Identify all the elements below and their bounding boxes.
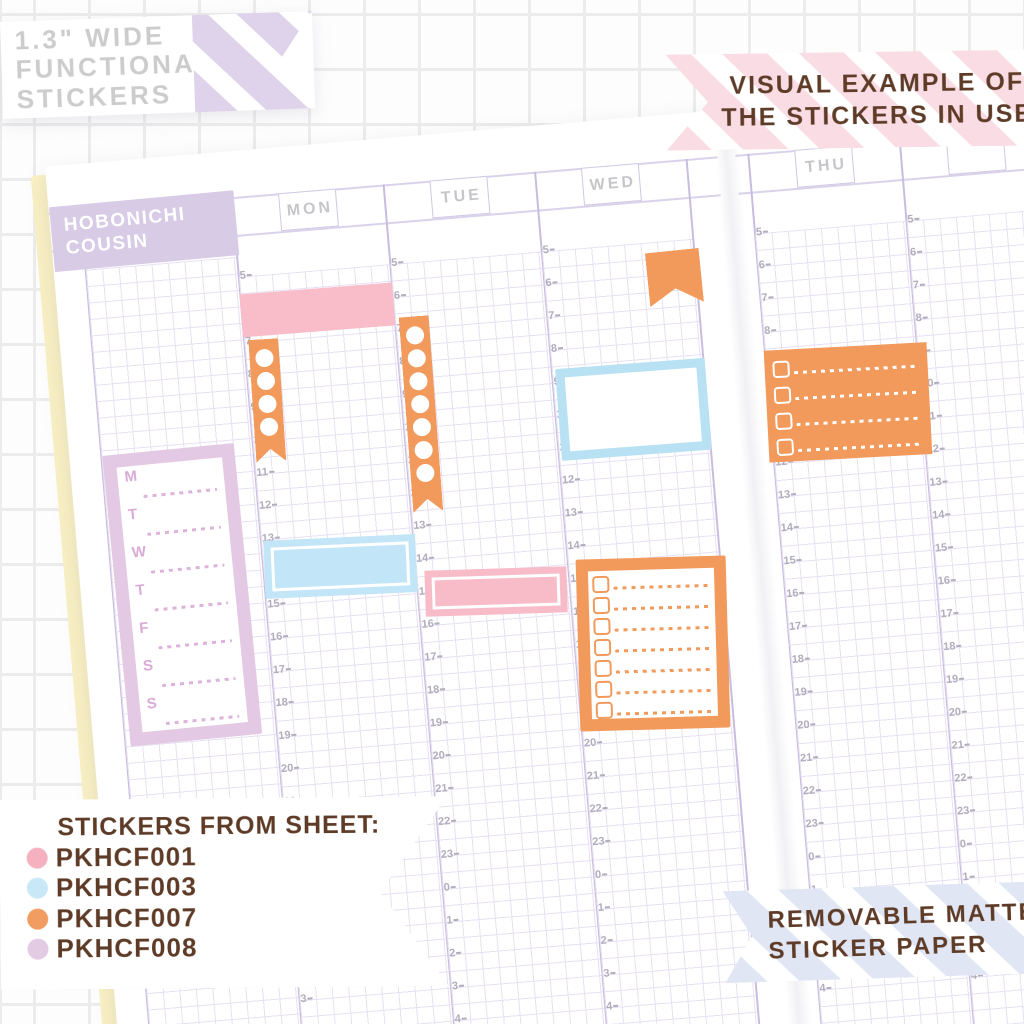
time-label: 2 (600, 934, 613, 947)
time-label: 0 (443, 881, 456, 894)
time-label: 23 (592, 835, 611, 848)
tracker-day-letter: F (139, 619, 150, 637)
time-tick (451, 820, 456, 822)
time-tick (766, 264, 771, 266)
time-label: 7 (912, 279, 925, 292)
time-tick (555, 314, 560, 316)
time-tick (269, 471, 274, 473)
tracker-day-letter: S (146, 695, 158, 713)
time-label: 22 (802, 784, 821, 797)
time-label: 20 (281, 762, 300, 775)
time-tick (914, 218, 919, 220)
time-tick (426, 524, 431, 526)
time-label: 17 (424, 650, 443, 663)
white-inner-outline (271, 541, 411, 591)
time-tick (429, 557, 434, 559)
time-tick (275, 537, 280, 539)
time-label: 5 (755, 225, 768, 238)
time-label: 23 (440, 848, 459, 861)
time-tick (281, 602, 286, 604)
tracker-dotted-line (143, 488, 217, 498)
sheet-code: PKHCF003 (56, 871, 197, 903)
time-label: 3 (603, 967, 616, 980)
product-image: MON5678910111213141516171819202122230123… (0, 0, 1024, 1024)
time-tick (945, 513, 950, 515)
time-tick (605, 906, 610, 908)
time-label: 6 (545, 276, 558, 289)
checklist-circle (414, 440, 433, 459)
legend-rows: PKHCF001PKHCF003PKHCF007PKHCF008 (0, 839, 449, 965)
time-tick (606, 840, 611, 842)
time-tick (440, 688, 445, 690)
time-tick (578, 511, 583, 513)
time-tick (956, 645, 961, 647)
time-label: 14 (780, 521, 799, 534)
orange-solid-checklist-sticker (764, 342, 933, 462)
time-tick (446, 754, 451, 756)
time-tick (575, 478, 580, 480)
day-label: TUE (440, 186, 482, 207)
time-tick (292, 734, 297, 736)
time-label: 16 (786, 587, 805, 600)
time-label: 18 (427, 683, 446, 696)
time-tick (438, 655, 443, 657)
time-tick (771, 329, 776, 331)
time-label: 16 (270, 630, 289, 643)
checkbox-outline (593, 597, 610, 614)
top-left-badge: 1.3" WIDE FUNCTIONAL STICKERS (0, 11, 315, 119)
time-tick (811, 723, 816, 725)
dotted-line (798, 442, 924, 452)
time-tick (608, 939, 613, 941)
dotted-line (795, 390, 921, 400)
time-label: 14 (932, 508, 951, 521)
time-tick (552, 282, 557, 284)
time-tick (435, 623, 440, 625)
day-label: MON (286, 199, 334, 221)
time-label: 0 (595, 868, 608, 881)
time-tick (283, 635, 288, 637)
time-tick (797, 559, 802, 561)
lavender-washi-flag (192, 11, 315, 112)
time-tick (970, 809, 975, 811)
tracker-dotted-line (154, 601, 228, 611)
time-label: 0 (959, 838, 972, 851)
time-tick (610, 972, 615, 974)
time-label: 15 (267, 597, 286, 610)
time-tick (763, 231, 768, 233)
badge-text: REMOVABLE MATTE STICKER PAPER (723, 896, 1024, 968)
time-tick (398, 261, 403, 263)
time-tick (967, 843, 972, 845)
legend-title: STICKERS FROM SHEET: (0, 810, 448, 843)
dotted-line (616, 689, 711, 695)
time-tick (920, 284, 925, 286)
legend-item: PKHCF001 (0, 839, 448, 873)
dotted-line (613, 584, 708, 590)
time-tick (453, 919, 458, 921)
tracker-day-letter: T (135, 581, 146, 599)
time-tick (816, 789, 821, 791)
day-header-box: TUE (429, 176, 490, 219)
time-tick (769, 296, 774, 298)
time-label: 14 (416, 552, 435, 565)
checklist-circle (409, 372, 428, 391)
time-label: 20 (432, 749, 451, 762)
day-label: WED (589, 173, 637, 195)
time-tick (581, 544, 586, 546)
badge-line: STICKERS (16, 78, 216, 114)
time-label: 2 (449, 947, 462, 960)
time-tick (294, 767, 299, 769)
dotted-line (615, 626, 710, 632)
time-tick (308, 998, 313, 1000)
checkbox-outline (595, 681, 612, 698)
time-tick (286, 668, 291, 670)
checklist-row (596, 697, 713, 721)
time-label: 21 (435, 782, 454, 795)
legend-item: PKHCF007 (0, 900, 448, 934)
time-label: 5 (391, 256, 404, 269)
time-tick (813, 756, 818, 758)
time-tick (401, 294, 406, 296)
time-label: 13 (413, 519, 432, 532)
time-label: 16 (937, 574, 956, 587)
tracker-day-letter: S (142, 657, 154, 675)
time-label: 4 (819, 982, 832, 995)
checkbox-outline (772, 360, 790, 378)
day-header-box: MON (278, 188, 339, 231)
checkbox-outline (592, 576, 609, 593)
time-label: 22 (589, 802, 608, 815)
checkbox-outline (594, 660, 611, 677)
day-label: THU (805, 156, 848, 177)
time-label: 14 (567, 539, 586, 552)
time-label: 20 (584, 736, 603, 749)
time-tick (289, 701, 294, 703)
time-label: 3 (300, 992, 313, 1005)
time-tick (550, 249, 555, 251)
time-label: 18 (943, 640, 962, 653)
badge-line: VISUAL EXAMPLE OF (721, 65, 1024, 102)
time-label: 12 (562, 473, 581, 486)
checklist-circle (405, 326, 424, 345)
checklist-circle (256, 371, 275, 390)
legend-item: PKHCF003 (0, 870, 448, 904)
time-label: 19 (429, 716, 448, 729)
time-tick (602, 873, 607, 875)
time-label: 22 (954, 771, 973, 784)
time-tick (951, 579, 956, 581)
time-tick (451, 886, 456, 888)
time-label: 23 (805, 817, 824, 830)
time-label: 21 (951, 738, 970, 751)
time-label: 1 (597, 901, 610, 914)
time-label: 12 (259, 499, 278, 512)
time-label: 11 (256, 466, 275, 479)
time-label: 21 (586, 769, 605, 782)
time-tick (808, 691, 813, 693)
time-tick (597, 741, 602, 743)
time-tick (247, 274, 252, 276)
time-tick (937, 415, 942, 417)
time-tick (802, 625, 807, 627)
blue-box-sticker (263, 534, 417, 599)
tracker-dotted-line (166, 715, 240, 725)
time-label: 7 (548, 309, 561, 322)
time-label: 4 (454, 1012, 467, 1024)
checkbox-outline (774, 386, 792, 404)
legend-item: PKHCF008 (0, 931, 448, 965)
time-tick (613, 1005, 618, 1007)
time-label: 13 (778, 488, 797, 501)
time-label: 3 (451, 980, 464, 993)
time-label: 20 (948, 706, 967, 719)
badge-text: VISUAL EXAMPLE OF THE STICKERS IN USE (681, 65, 1024, 135)
day-header-box: THU (794, 145, 855, 188)
time-tick (456, 952, 461, 954)
time-label: 5 (239, 269, 252, 282)
tracker-dotted-line (147, 526, 221, 536)
time-label: 5 (907, 213, 920, 226)
checkbox-outline (776, 438, 794, 456)
checkbox-outline (594, 639, 611, 656)
checklist-circle (258, 394, 277, 413)
time-tick (462, 1018, 467, 1020)
tracker-row: S (146, 686, 248, 733)
top-right-badge: VISUAL EXAMPLE OF THE STICKERS IN USE (665, 49, 1024, 150)
dotted-line (615, 647, 710, 653)
time-label: 21 (800, 751, 819, 764)
checklist-circle (259, 417, 278, 436)
time-tick (967, 777, 972, 779)
time-tick (805, 658, 810, 660)
pink-box-sticker (424, 566, 567, 616)
dotted-line (794, 364, 920, 374)
tracker-dotted-line (158, 639, 232, 649)
orange-checklist-box-sticker (576, 555, 731, 731)
time-tick (917, 251, 922, 253)
time-tick (600, 774, 605, 776)
time-label: 8 (915, 311, 928, 324)
time-tick (454, 853, 459, 855)
habit-tracker-sticker: MTWTFSS (102, 443, 262, 746)
time-label: 23 (957, 804, 976, 817)
time-tick (603, 807, 608, 809)
time-label: 19 (946, 673, 965, 686)
bottom-right-badge: REMOVABLE MATTE STICKER PAPER (723, 881, 1024, 983)
time-label: 17 (789, 620, 808, 633)
time-tick (943, 481, 948, 483)
dotted-line (796, 416, 922, 426)
white-inner-outline (432, 573, 561, 609)
time-tick (819, 822, 824, 824)
time-label: 5 (542, 243, 555, 256)
badge-text: 1.3" WIDE FUNCTIONAL STICKERS (14, 20, 216, 115)
color-dot (27, 939, 48, 960)
time-tick (923, 317, 928, 319)
time-tick (948, 546, 953, 548)
time-label: 6 (910, 246, 923, 259)
time-label: 16 (421, 617, 440, 630)
dotted-line (616, 668, 711, 674)
sheet-code: PKHCF008 (56, 932, 197, 964)
dotted-line (617, 710, 712, 716)
time-label: 17 (940, 607, 959, 620)
checkbox-outline (593, 618, 610, 635)
time-label: 1 (446, 914, 459, 927)
time-tick (970, 876, 975, 878)
checklist-circle (255, 348, 274, 367)
time-label: 13 (929, 475, 948, 488)
blue-outline-box-sticker (555, 358, 711, 461)
tracker-dotted-line (162, 677, 236, 687)
time-label: 20 (797, 718, 816, 731)
time-label: 13 (564, 506, 583, 519)
color-dot (27, 847, 48, 868)
time-label: 0 (808, 850, 821, 863)
tracker-day-letter: T (127, 506, 138, 524)
time-tick (272, 504, 277, 506)
checkbox-outline (775, 412, 793, 430)
dotted-line (614, 605, 709, 611)
time-tick (449, 787, 454, 789)
time-tick (965, 744, 970, 746)
time-label: 8 (550, 342, 563, 355)
sheet-code: PKHCF001 (56, 841, 197, 873)
time-label: 6 (393, 289, 406, 302)
time-tick (791, 493, 796, 495)
checklist-circle (412, 417, 431, 436)
time-label: 22 (438, 815, 457, 828)
color-dot (27, 908, 48, 929)
day-header-box: WED (581, 163, 642, 206)
time-label: 7 (761, 291, 774, 304)
tracker-dotted-line (151, 563, 225, 573)
time-tick (959, 678, 964, 680)
sheet-code: PKHCF007 (56, 902, 197, 934)
time-tick (954, 612, 959, 614)
time-tick (558, 347, 563, 349)
time-tick (940, 448, 945, 450)
time-label: 15 (783, 554, 802, 567)
checklist-circle (411, 395, 430, 414)
time-tick (799, 592, 804, 594)
time-tick (934, 382, 939, 384)
time-label: 18 (275, 696, 294, 709)
color-dot (27, 878, 48, 899)
time-label: 19 (794, 685, 813, 698)
time-tick (962, 711, 967, 713)
time-label: 18 (791, 652, 810, 665)
time-label: 4 (606, 1000, 619, 1013)
time-label: 8 (764, 324, 777, 337)
time-tick (815, 856, 820, 858)
time-label: 6 (758, 258, 771, 271)
time-label: 19 (278, 729, 297, 742)
time-label: 1 (962, 870, 975, 883)
checkbox-outline (596, 702, 613, 719)
time-tick (443, 721, 448, 723)
time-tick (826, 987, 831, 989)
tracker-day-letter: M (124, 468, 138, 486)
time-tick (794, 526, 799, 528)
checklist-circle (407, 349, 426, 368)
tracker-day-letter: W (131, 543, 147, 561)
badge-line: THE STICKERS IN USE (721, 98, 1024, 135)
time-label: 15 (935, 541, 954, 554)
time-tick (459, 985, 464, 987)
time-label: 17 (272, 663, 291, 676)
checklist-circle (416, 463, 435, 482)
